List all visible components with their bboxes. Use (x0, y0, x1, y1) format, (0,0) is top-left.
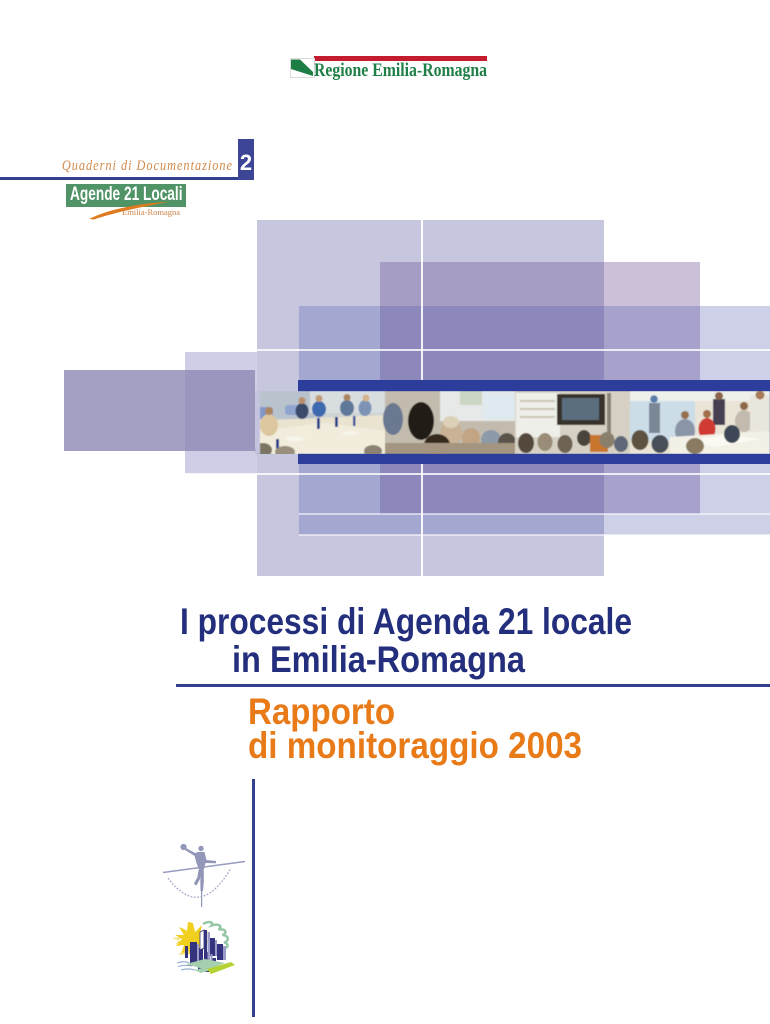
svg-text:Emilia-Romagna: Emilia-Romagna (122, 207, 180, 217)
